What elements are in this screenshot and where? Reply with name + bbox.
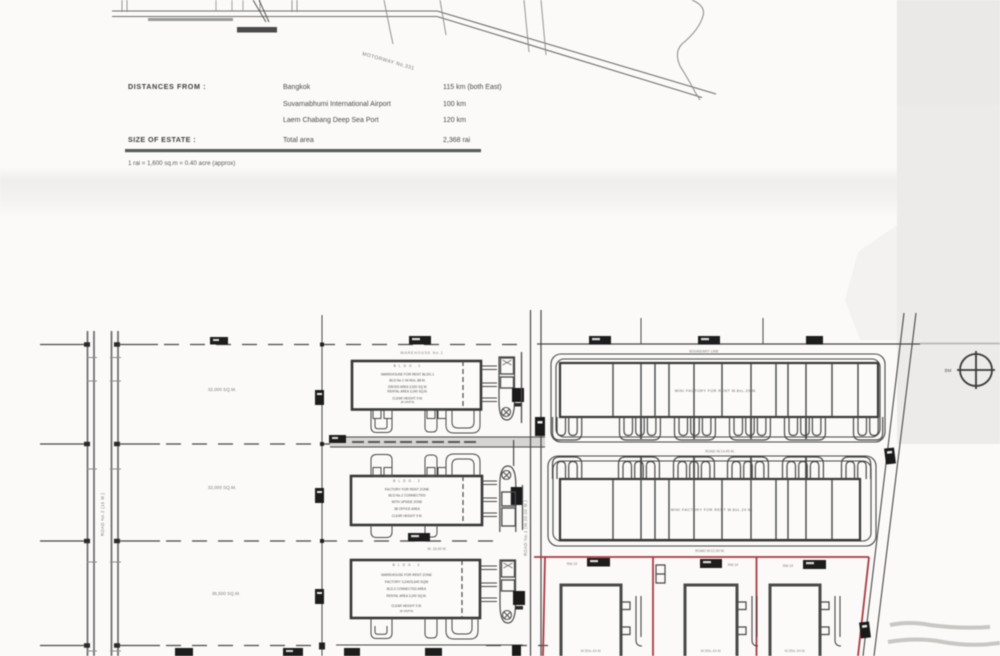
svg-text:Suvarnabhumi International A: Suvarnabhumi International Airport — [283, 101, 391, 108]
svg-text:115 km (both East): 115 km (both East) — [443, 84, 502, 91]
svg-text:FACTORY 3,240/3,640 SQM: FACTORY 3,240/3,640 SQM — [385, 580, 429, 584]
svg-text:3B OFFICE AREA: 3B OFFICE AREA — [394, 507, 421, 511]
svg-text:BOUNDARY LINE: BOUNDARY LINE — [689, 350, 719, 354]
svg-text:WAREHOUSE FOR RENT ZONE: WAREHOUSE FOR RENT ZONE — [381, 573, 432, 577]
svg-text:(8 UNITS): (8 UNITS) — [401, 400, 415, 404]
svg-text:BM: BM — [945, 368, 952, 373]
svg-text:2,368 rai: 2,368 rai — [443, 137, 471, 144]
svg-text:FACTORY FOR RENT ZONE: FACTORY FOR RENT ZONE — [385, 488, 430, 492]
svg-text:BLD.No.1 W.40xL.88 M.: BLD.No.1 W.40xL.88 M. — [389, 379, 425, 383]
svg-text:WAREHOUSE FOR RENT BLDG.1: WAREHOUSE FOR RENT BLDG.1 — [381, 373, 434, 377]
svg-text:W. 16.00 M.: W. 16.00 M. — [427, 547, 446, 551]
svg-text:100 km: 100 km — [443, 101, 466, 108]
svg-text:BLD.No.2 CONNECTED: BLD.No.2 CONNECTED — [388, 494, 426, 498]
svg-text:SIZE OF ESTATE :: SIZE OF ESTATE : — [128, 135, 196, 144]
svg-text:CLEAR HEIGHT 9 M.: CLEAR HEIGHT 9 M. — [391, 604, 422, 608]
svg-text:BLD.3 CONNECTED AREA: BLD.3 CONNECTED AREA — [387, 587, 427, 591]
svg-text:CLEAR HEIGHT 9 M.: CLEAR HEIGHT 9 M. — [392, 514, 423, 518]
svg-text:Laem Chabang Deep Sea Port: Laem Chabang Deep Sea Port — [283, 117, 379, 124]
svg-text:ROAD No.1 (W.20.00 M.): ROAD No.1 (W.20.00 M.) — [523, 500, 528, 556]
svg-text:B L D G . 3: B L D G . 3 — [393, 563, 421, 567]
svg-text:RENTAL AREA 3,240 SQ.M.: RENTAL AREA 3,240 SQ.M. — [386, 594, 426, 598]
svg-text:1 rai = 1,600 sq.m = 0.4: 1 rai = 1,600 sq.m = 0.40 acre (approx) — [128, 160, 235, 167]
svg-text:ROAD No.2 (16 M.): ROAD No.2 (16 M.) — [100, 492, 105, 536]
svg-text:WITH UPSIDE ZONE: WITH UPSIDE ZONE — [392, 500, 423, 504]
svg-text:MINI FACTORY FOR RENT W.8xL.2: MINI FACTORY FOR RENT W.8xL.24 M. — [671, 508, 753, 512]
svg-text:RAI 10: RAI 10 — [567, 562, 577, 566]
svg-text:MINI FACTORY FOR RENT W.8xL.2: MINI FACTORY FOR RENT W.8xL.20 M. — [675, 389, 757, 393]
svg-text:B L D G . 1: B L D G . 1 — [394, 364, 422, 368]
svg-text:Bangkok: Bangkok — [283, 84, 311, 91]
svg-text:32,000 SQ.M.: 32,000 SQ.M. — [208, 387, 236, 392]
svg-text:ROAD W.14.00 M.: ROAD W.14.00 M. — [705, 450, 735, 454]
svg-text:32,000 SQ.M.: 32,000 SQ.M. — [208, 485, 236, 490]
svg-text:B L D G . 2: B L D G . 2 — [393, 479, 421, 483]
svg-text:GROSS AREA 3,520 SQ.M.: GROSS AREA 3,520 SQ.M. — [388, 385, 428, 389]
svg-text:(8 UNITS): (8 UNITS) — [400, 609, 414, 613]
svg-text:DISTANCES FROM :: DISTANCES FROM : — [128, 82, 206, 91]
svg-text:RAI 10: RAI 10 — [783, 564, 793, 568]
svg-text:W.26xL.64 M.: W.26xL.64 M. — [701, 649, 722, 653]
svg-text:120 km: 120 km — [443, 117, 466, 124]
svg-text:ROAD W.12.00 M.: ROAD W.12.00 M. — [695, 549, 725, 553]
svg-text:W.25xL.64 M.: W.25xL.64 M. — [785, 649, 806, 653]
svg-text:W.30xL.64 M.: W.30xL.64 M. — [581, 649, 602, 653]
svg-text:RENTAL AREA 3,240 SQ.M.: RENTAL AREA 3,240 SQ.M. — [387, 390, 427, 394]
svg-text:36,500 SQ.M.: 36,500 SQ.M. — [212, 591, 240, 596]
svg-text:RAI 10: RAI 10 — [728, 563, 738, 567]
svg-text:WAREHOUSE No.1: WAREHOUSE No.1 — [400, 351, 443, 355]
svg-text:Total area: Total area — [283, 137, 314, 144]
